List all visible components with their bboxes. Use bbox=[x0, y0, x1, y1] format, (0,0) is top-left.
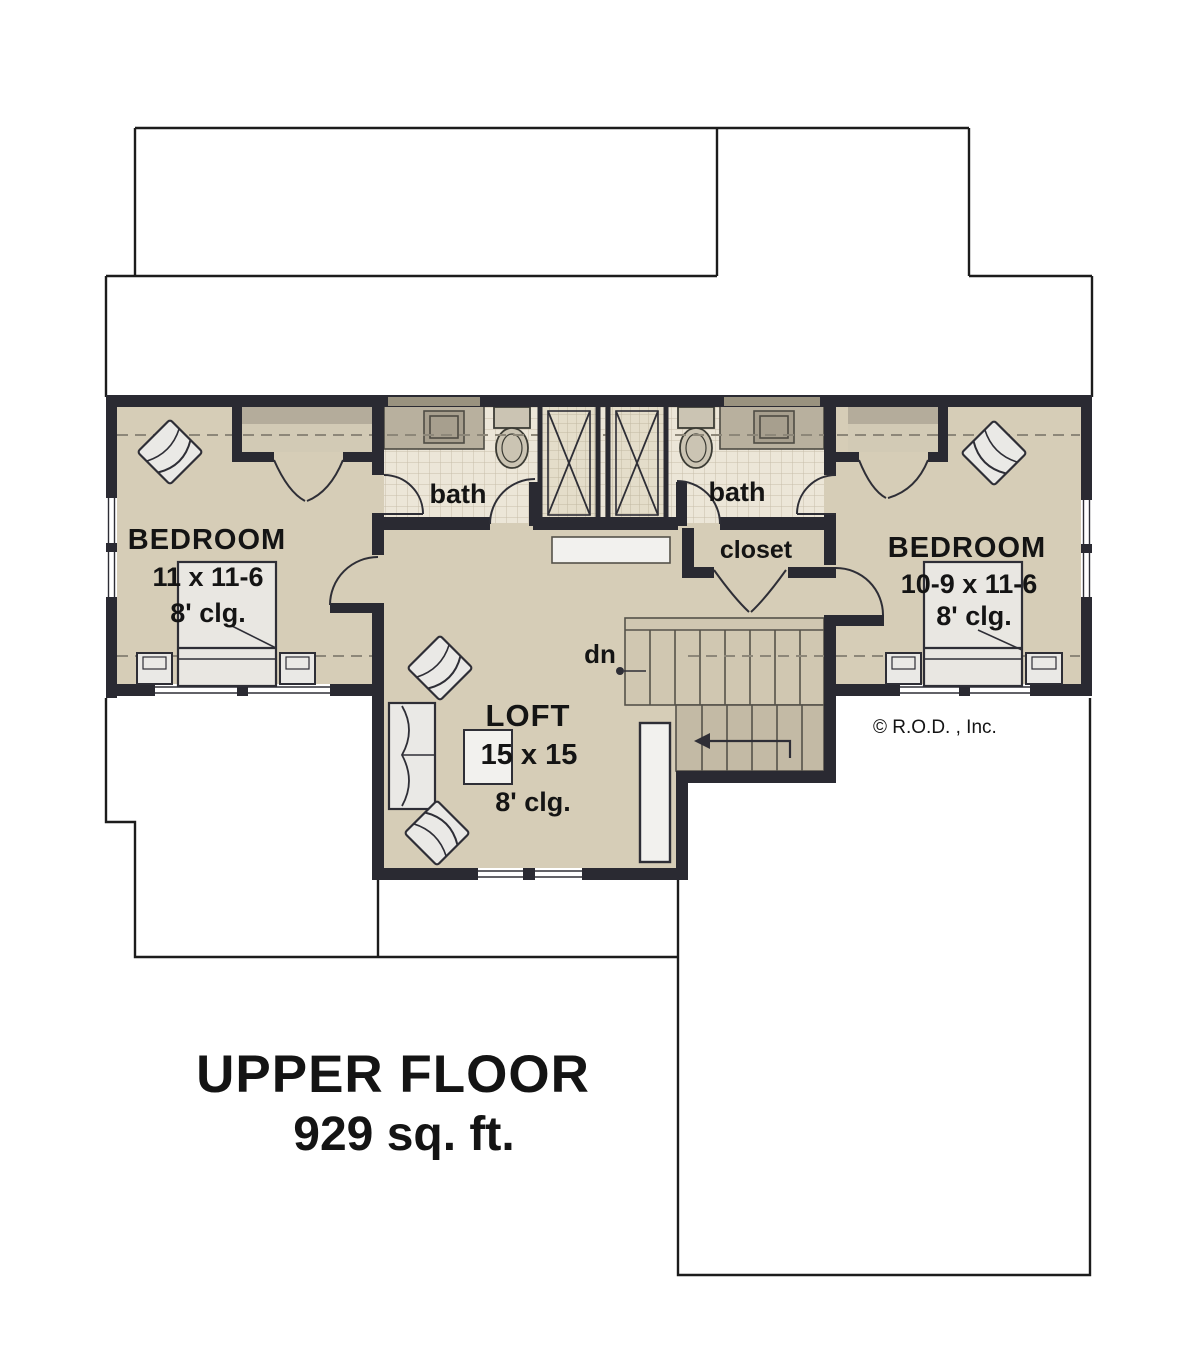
loft-ceiling: 8' clg. bbox=[495, 787, 570, 817]
toilet-left-icon bbox=[494, 407, 530, 468]
plan-area: 929 sq. ft. bbox=[293, 1108, 514, 1161]
floor-plan-page: BEDROOM 11 x 11-6 8' clg. BEDROOM 10-9 x… bbox=[0, 0, 1200, 1357]
bedroom-left-ceiling: 8' clg. bbox=[170, 598, 245, 628]
toilet-right-icon bbox=[678, 407, 714, 468]
bath-right-label: bath bbox=[709, 477, 766, 507]
bedroom-right-door-leaf bbox=[836, 615, 884, 626]
sofa-icon bbox=[389, 703, 435, 809]
bath-left-door-leaf bbox=[529, 482, 540, 526]
mirror-right-icon bbox=[724, 397, 820, 406]
window-loft bbox=[478, 868, 582, 880]
bedroom-right-ceiling: 8' clg. bbox=[936, 601, 1011, 631]
floor-plan-drawing: BEDROOM 11 x 11-6 8' clg. BEDROOM 10-9 x… bbox=[0, 0, 1200, 1357]
loft-dims: 15 x 15 bbox=[481, 739, 578, 771]
plan-title: UPPER FLOOR bbox=[196, 1045, 590, 1104]
bath-left-label: bath bbox=[430, 479, 487, 509]
stairs-down-label: dn bbox=[584, 639, 616, 669]
hall-shelf bbox=[552, 537, 670, 563]
window-right-wall bbox=[1081, 500, 1092, 597]
bedroom-right-dims: 10-9 x 11-6 bbox=[901, 569, 1038, 599]
bedroom-left-dims: 11 x 11-6 bbox=[152, 562, 263, 592]
window-left-wall bbox=[106, 498, 117, 597]
copyright-text: © R.O.D. , Inc. bbox=[873, 717, 997, 738]
bedroom-left-door-leaf bbox=[330, 603, 375, 613]
bedroom-left-name: BEDROOM bbox=[128, 524, 286, 556]
bath-right-door-leaf bbox=[676, 482, 687, 526]
stair-railing bbox=[640, 723, 670, 862]
bedroom-right-name: BEDROOM bbox=[888, 532, 1046, 564]
loft-name: LOFT bbox=[486, 698, 571, 733]
dn-leader-dot bbox=[616, 667, 624, 675]
closet-label: closet bbox=[720, 536, 793, 564]
mirror-left-icon bbox=[388, 397, 480, 406]
